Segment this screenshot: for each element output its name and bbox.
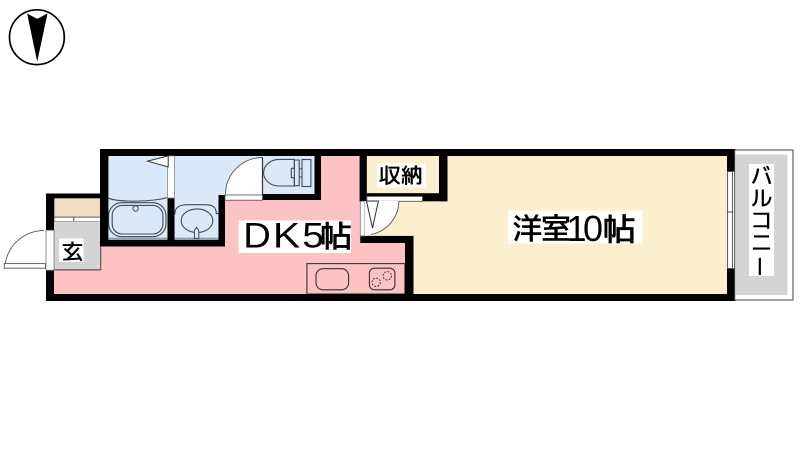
svg-text:5: 5 [302,216,324,256]
svg-text:0: 0 [583,208,603,249]
svg-text:D: D [243,216,271,255]
svg-text:K: K [273,217,300,256]
